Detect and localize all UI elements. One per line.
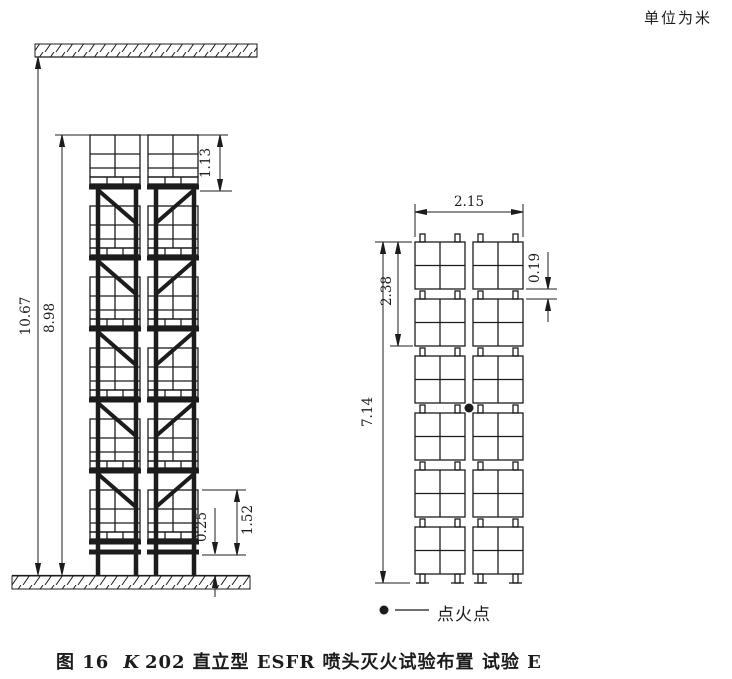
rack-tier (89, 206, 199, 258)
pallet-unit (415, 519, 523, 574)
ignition-point-dot (465, 404, 474, 413)
dim-pallet-gap: 0.19 (526, 252, 557, 322)
dim-label-two-tiers: 2.38 (379, 276, 395, 306)
dim-ceiling-height: 10.67 (18, 58, 38, 574)
dim-label-top-of-storage: 8.98 (42, 303, 58, 333)
rack-tier (89, 348, 199, 400)
floor-hatch (12, 576, 250, 589)
pallet-unit (415, 234, 523, 289)
legend-label: 点火点 (437, 600, 491, 625)
rack-tier (89, 419, 199, 471)
dim-label-floor-clearance: 0.25 (194, 512, 210, 542)
figure-caption: 图 16K202直立型 ESFR 喷头灭火试验布置 试验 E (56, 648, 542, 674)
dim-two-tiers: 2.38 (379, 243, 413, 346)
pallet-unit (415, 405, 523, 460)
rack-tier (89, 490, 199, 542)
floor-left (12, 576, 250, 590)
dim-label-tier-height: 1.52 (240, 505, 256, 535)
dim-tier-height: 1.52 (202, 490, 256, 555)
ceiling (35, 44, 257, 57)
caption-code-prefix: K (123, 652, 140, 673)
test-arrangement-drawing: 10.67 8.98 1.13 1.52 0.25 (0, 0, 732, 679)
rack-tier (89, 277, 199, 329)
rack-posts (98, 184, 194, 575)
dim-label-top-tier-load: 1.13 (198, 148, 214, 178)
dim-label-ceiling-height: 10.67 (18, 297, 34, 336)
dim-array-width: 2.15 (415, 194, 523, 237)
figure-page: 10.67 8.98 1.13 1.52 0.25 (0, 0, 732, 679)
caption-figure-no: 图 16 (56, 652, 109, 673)
legend-dot-icon (380, 606, 389, 615)
bottom-pallet-feet (416, 574, 522, 583)
dim-label-stack-height: 7.14 (360, 397, 376, 427)
dim-label-pallet-gap: 0.19 (527, 253, 543, 283)
caption-code-number: 202 (145, 652, 186, 673)
unit-note: 单位为米 (644, 7, 712, 28)
caption-title: 直立型 ESFR 喷头灭火试验布置 试验 E (193, 652, 542, 673)
pallet-unit (415, 462, 523, 517)
ceiling-hatch (35, 44, 257, 57)
legend (380, 606, 430, 615)
carton-pile (415, 234, 523, 583)
storage-rack (89, 135, 199, 575)
dim-label-array-width: 2.15 (454, 194, 484, 210)
rack-tier (89, 135, 199, 187)
pallet-unit (415, 348, 523, 403)
dim-top-tier-load: 1.13 (198, 136, 232, 191)
pallet-unit (415, 291, 523, 346)
